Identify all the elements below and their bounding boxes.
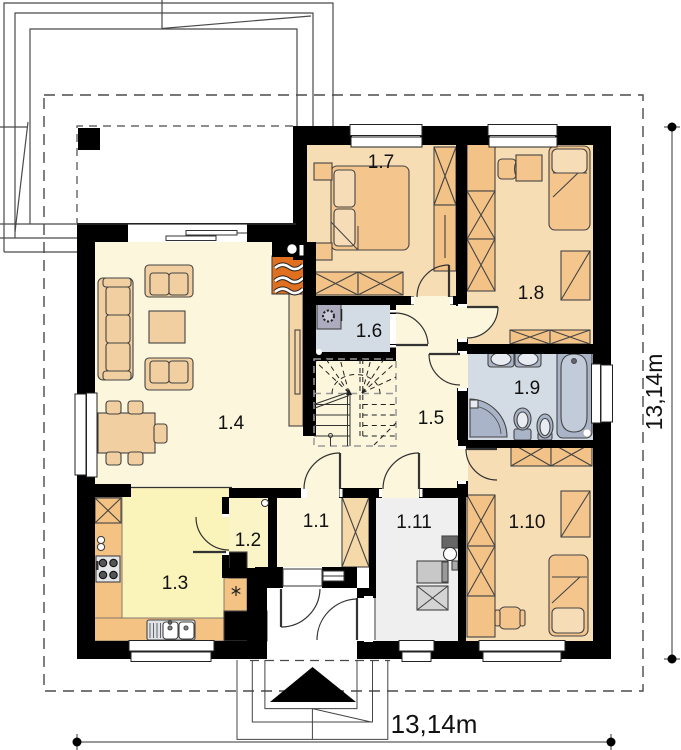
svg-text:1.10: 1.10 [509,512,546,533]
svg-text:13,14m: 13,14m [641,354,667,431]
svg-text:1.4: 1.4 [218,413,245,434]
svg-text:1.7: 1.7 [368,152,394,173]
svg-text:1.9: 1.9 [514,378,540,399]
svg-text:1.3: 1.3 [162,573,188,594]
svg-text:1.1: 1.1 [303,511,329,532]
svg-text:1.2: 1.2 [235,530,261,551]
svg-text:13,14m: 13,14m [391,709,478,739]
svg-text:1.5: 1.5 [418,408,444,429]
svg-text:1.8: 1.8 [518,283,544,304]
svg-text:1.6: 1.6 [356,321,382,342]
svg-text:1.11: 1.11 [396,512,432,533]
